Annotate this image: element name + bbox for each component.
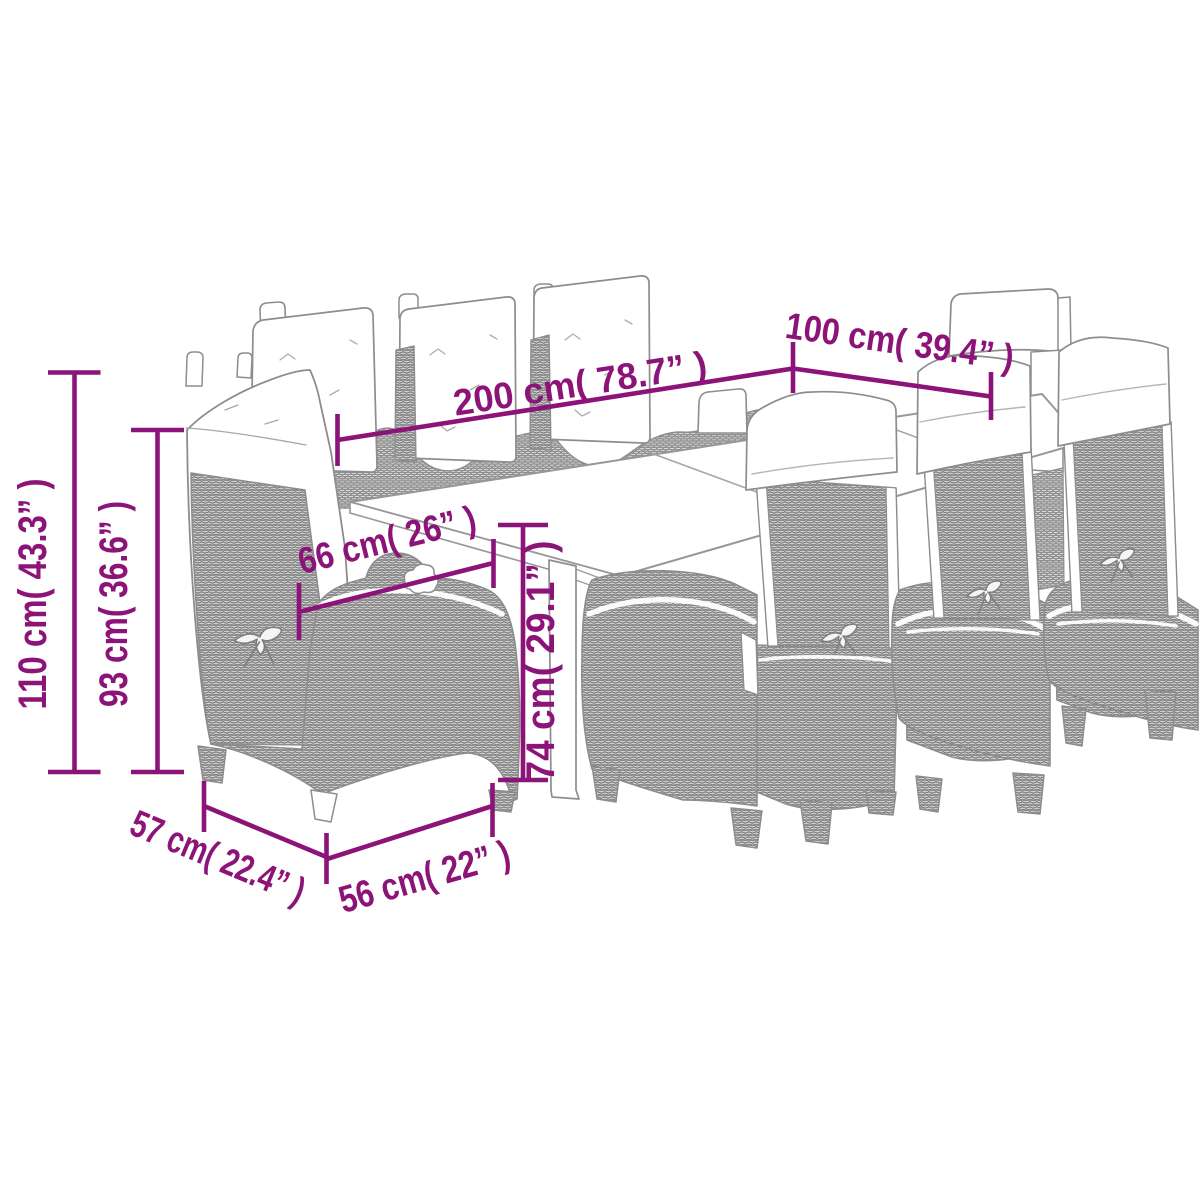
svg-text:93 cm( 36.6” ): 93 cm( 36.6” ) bbox=[92, 501, 136, 707]
svg-text:110 cm( 43.3” ): 110 cm( 43.3” ) bbox=[11, 479, 55, 710]
svg-text:74 cm( 29.1” ): 74 cm( 29.1” ) bbox=[519, 541, 563, 782]
